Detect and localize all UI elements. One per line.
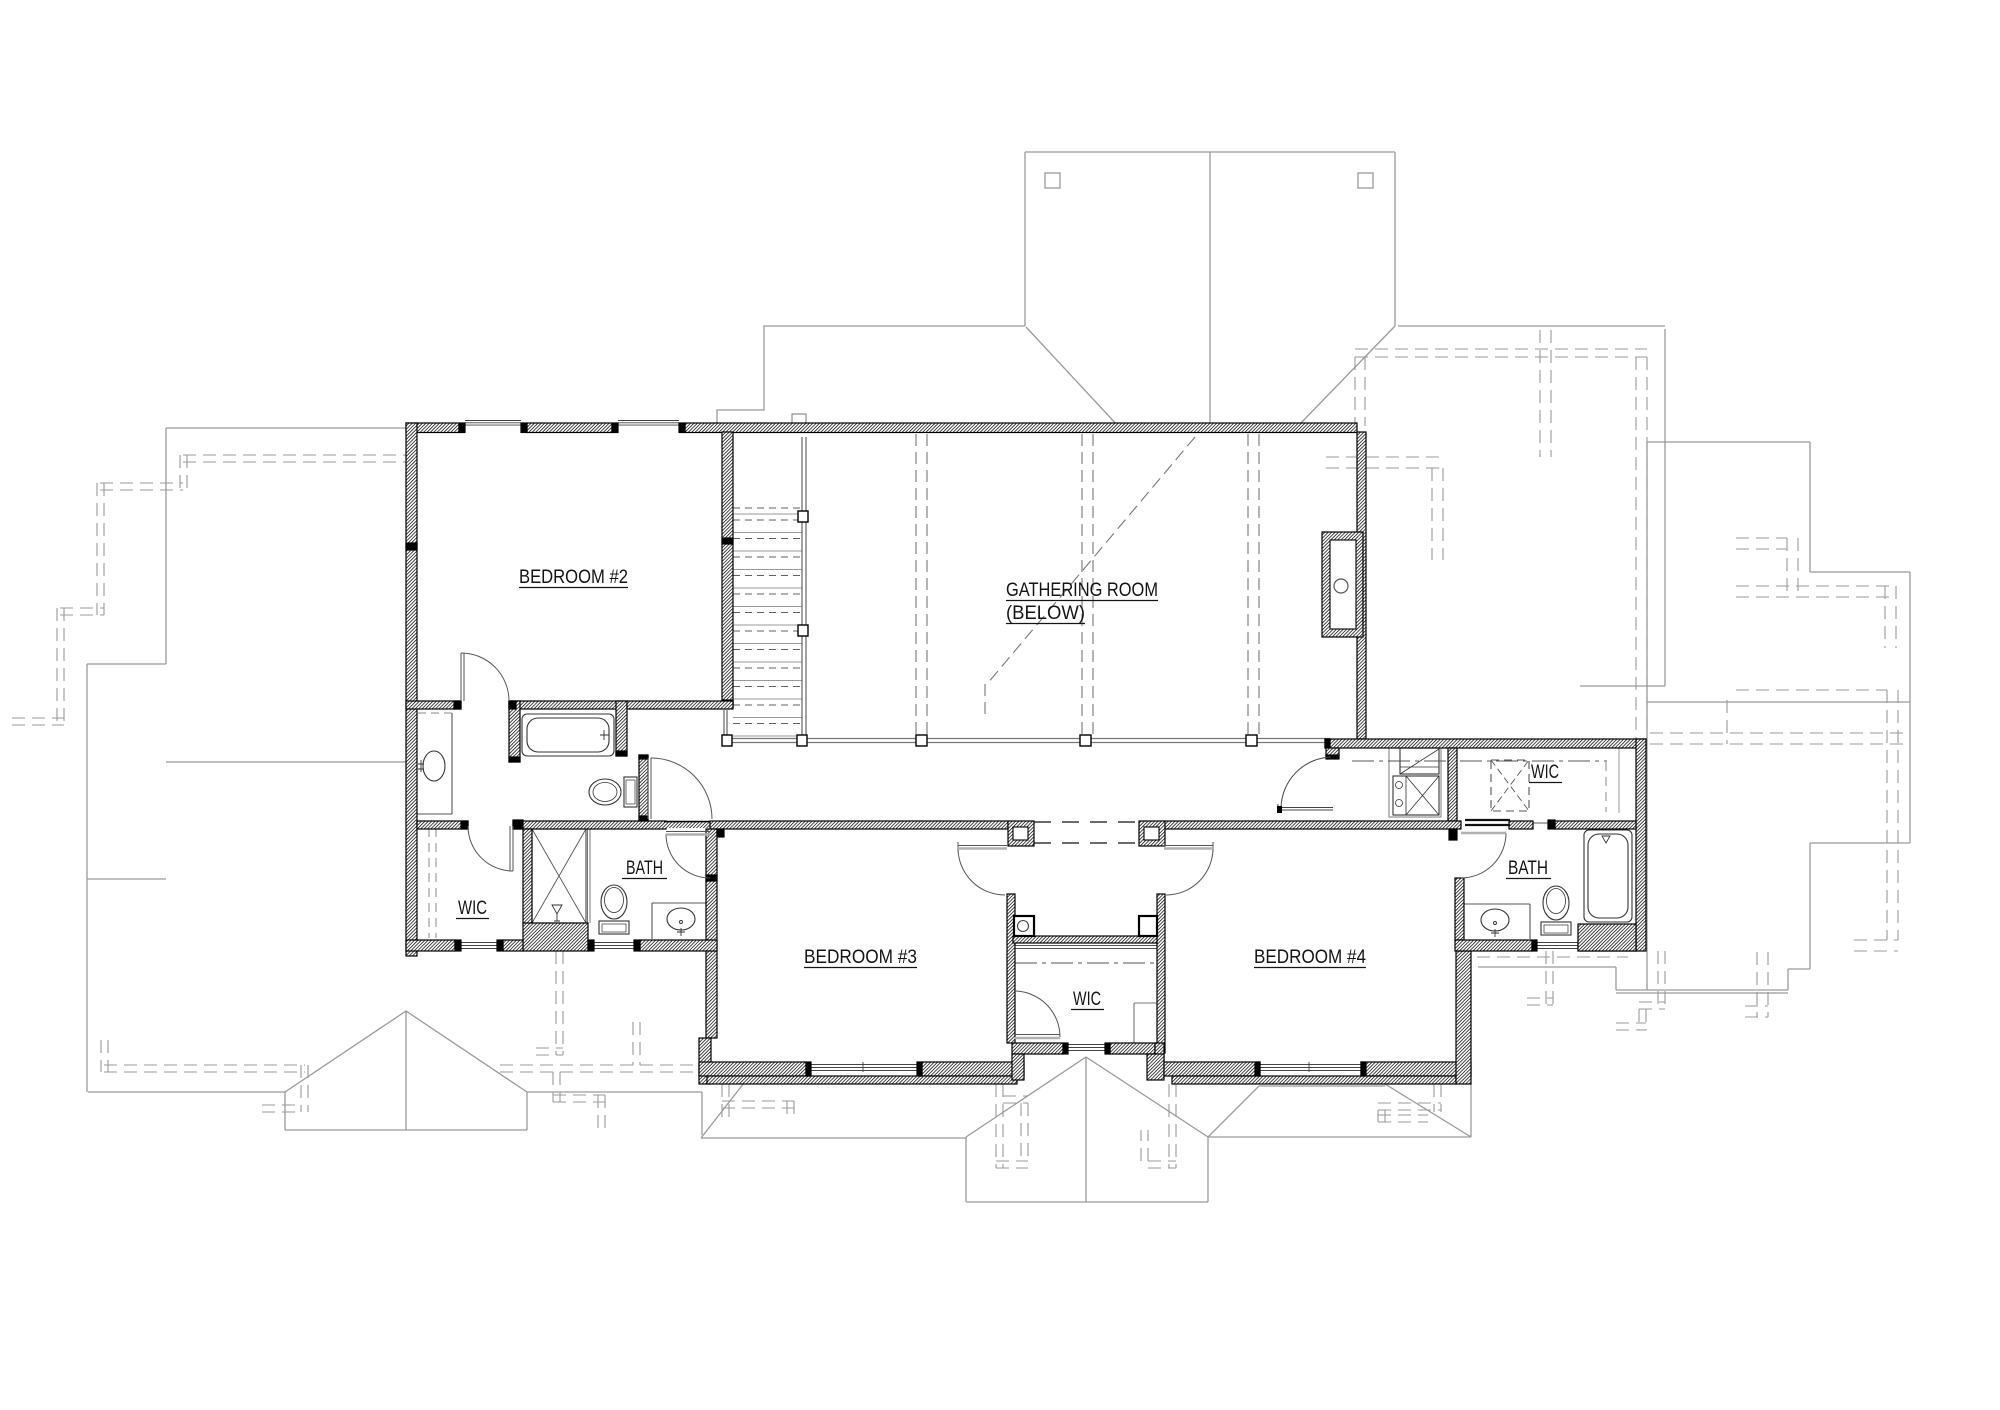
svg-text:GATHERING ROOM: GATHERING ROOM bbox=[1006, 580, 1158, 601]
svg-text:(BELOW): (BELOW) bbox=[1006, 603, 1085, 624]
svg-text:WIC: WIC bbox=[458, 898, 487, 919]
svg-text:BATH: BATH bbox=[626, 858, 663, 879]
svg-text:BATH: BATH bbox=[1508, 858, 1548, 879]
svg-text:WIC: WIC bbox=[1073, 989, 1101, 1010]
svg-text:BEDROOM #4: BEDROOM #4 bbox=[1254, 947, 1366, 968]
svg-text:BEDROOM #2: BEDROOM #2 bbox=[519, 567, 628, 588]
svg-text:WIC: WIC bbox=[1531, 762, 1559, 783]
svg-text:BEDROOM #3: BEDROOM #3 bbox=[804, 947, 917, 968]
